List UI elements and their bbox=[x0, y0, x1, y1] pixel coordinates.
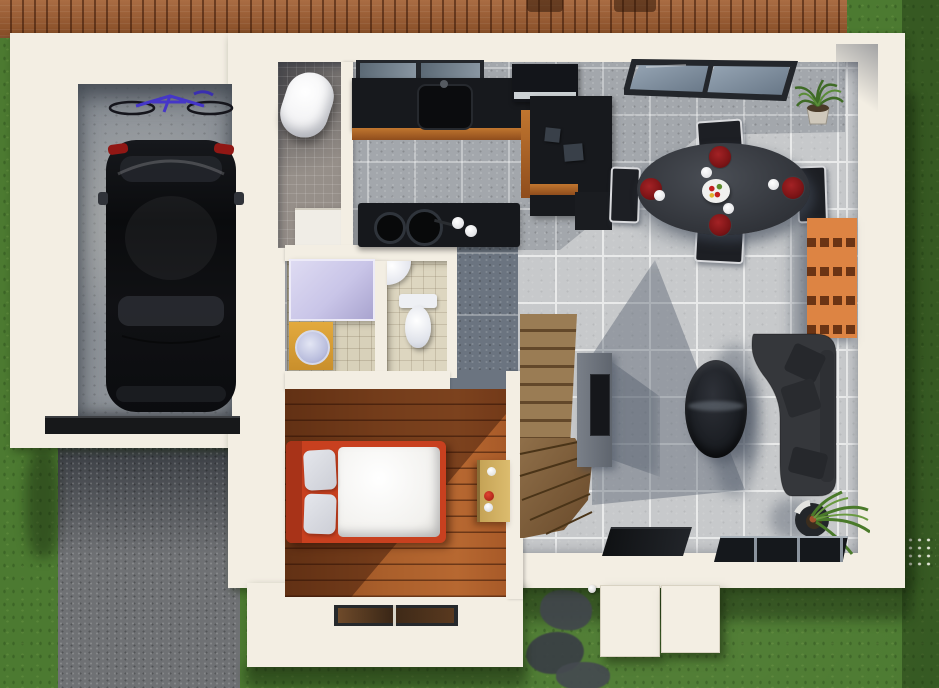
wall-wc-entry bbox=[447, 245, 457, 378]
entry-hall-floor bbox=[455, 245, 518, 378]
toilet-bowl bbox=[405, 306, 431, 348]
washing-machine bbox=[295, 208, 341, 248]
island-bowl bbox=[452, 217, 464, 229]
bed-duvet bbox=[338, 447, 440, 537]
dining-chair-west bbox=[609, 166, 641, 223]
desk-item-white bbox=[484, 503, 493, 512]
shutter-left bbox=[600, 585, 660, 657]
cup bbox=[654, 190, 665, 201]
bicycle bbox=[106, 86, 238, 122]
shutter-right bbox=[661, 585, 720, 653]
living-low-window bbox=[714, 536, 848, 562]
pillow bbox=[303, 449, 337, 491]
pillow bbox=[303, 493, 336, 534]
coffee-table-tray bbox=[688, 401, 744, 411]
counter-extension bbox=[575, 192, 612, 230]
bedroom-doorway bbox=[450, 371, 508, 389]
desk-cup bbox=[487, 467, 496, 476]
bedroom-window-divider bbox=[393, 605, 396, 626]
wall-shower-wc bbox=[375, 261, 387, 373]
sectional-sofa bbox=[744, 330, 840, 502]
counter-item bbox=[563, 143, 583, 162]
driveway bbox=[58, 446, 240, 688]
corner-window bbox=[624, 58, 802, 102]
cooktop-burner bbox=[374, 212, 406, 244]
cup bbox=[768, 179, 779, 190]
l-counter-trim-bottom bbox=[530, 184, 578, 195]
counter-item bbox=[544, 127, 560, 142]
bed-headboard bbox=[286, 441, 302, 543]
grass-shadow-driveway bbox=[26, 448, 60, 558]
plate bbox=[708, 213, 732, 237]
garage-door bbox=[45, 416, 240, 434]
kitchen-sink bbox=[417, 84, 473, 130]
plate bbox=[781, 176, 805, 200]
mirror-right bbox=[234, 192, 244, 205]
shelf-unit-columns bbox=[807, 218, 857, 338]
l-counter-trim bbox=[521, 110, 530, 198]
faucet bbox=[440, 80, 448, 88]
stepping-stone bbox=[556, 662, 610, 688]
living-glass-door bbox=[602, 527, 692, 556]
corner-shading bbox=[836, 44, 878, 126]
floor-plan-render bbox=[0, 0, 939, 688]
deck-stain-2 bbox=[614, 0, 656, 12]
stairs-straight-flight bbox=[520, 314, 577, 444]
desk-item-red bbox=[484, 491, 494, 501]
mirror-left bbox=[98, 192, 108, 205]
cup bbox=[723, 203, 734, 214]
black-car bbox=[98, 134, 244, 420]
vanity-sink bbox=[295, 330, 330, 365]
bedroom-window-glass bbox=[338, 608, 454, 623]
plate bbox=[708, 145, 732, 169]
deck-stain bbox=[527, 0, 563, 12]
cooktop-burner bbox=[406, 209, 443, 246]
glass-shower bbox=[289, 259, 375, 321]
door-knob bbox=[588, 585, 596, 593]
fruit-centerpiece bbox=[702, 179, 730, 203]
tv-screen bbox=[590, 374, 610, 436]
cup bbox=[701, 167, 712, 178]
island-bowl bbox=[465, 225, 477, 237]
bedroom-north-wall bbox=[285, 371, 450, 389]
